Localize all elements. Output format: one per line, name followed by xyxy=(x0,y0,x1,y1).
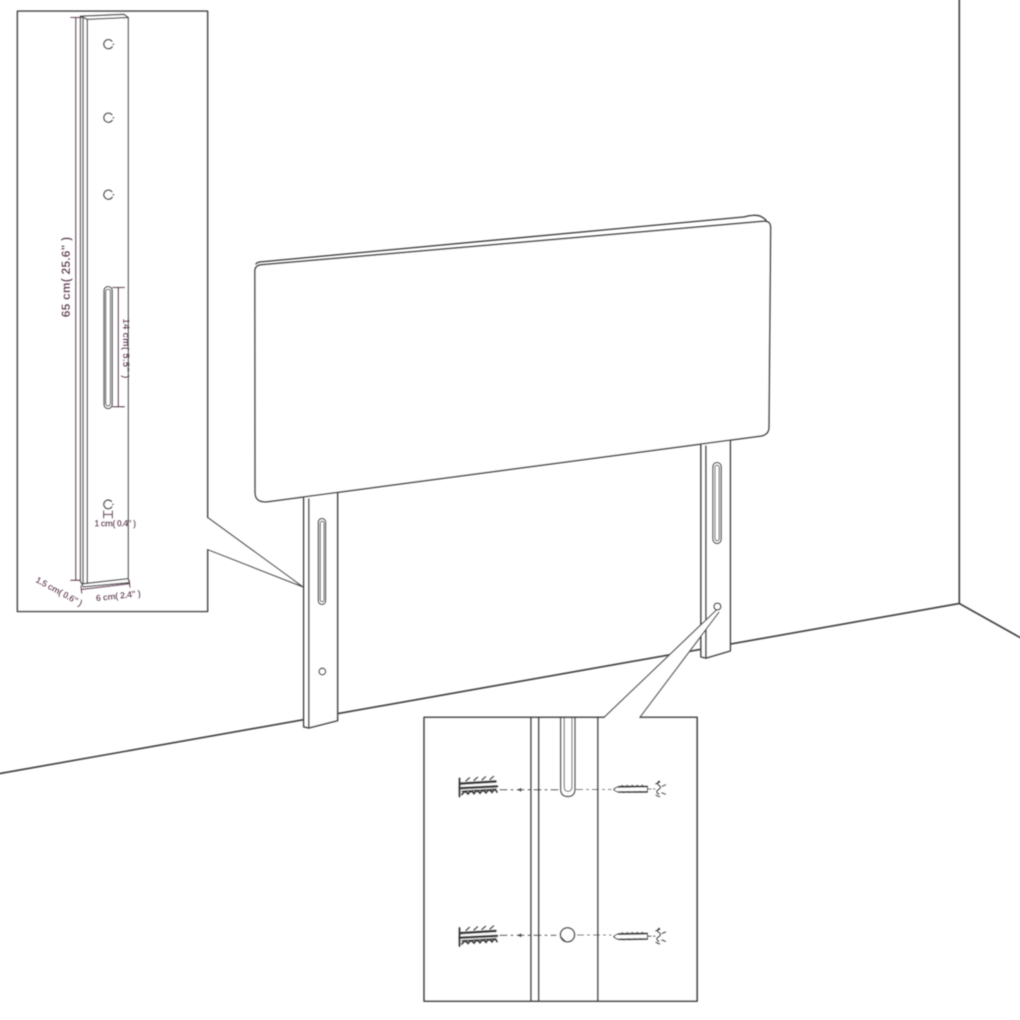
svg-text:65 cm( 25.6" ): 65 cm( 25.6" ) xyxy=(59,237,73,318)
svg-text:14 cm( 5.5" ): 14 cm( 5.5" ) xyxy=(120,318,131,378)
svg-text:1 cm( 0.4" ): 1 cm( 0.4" ) xyxy=(94,519,136,529)
